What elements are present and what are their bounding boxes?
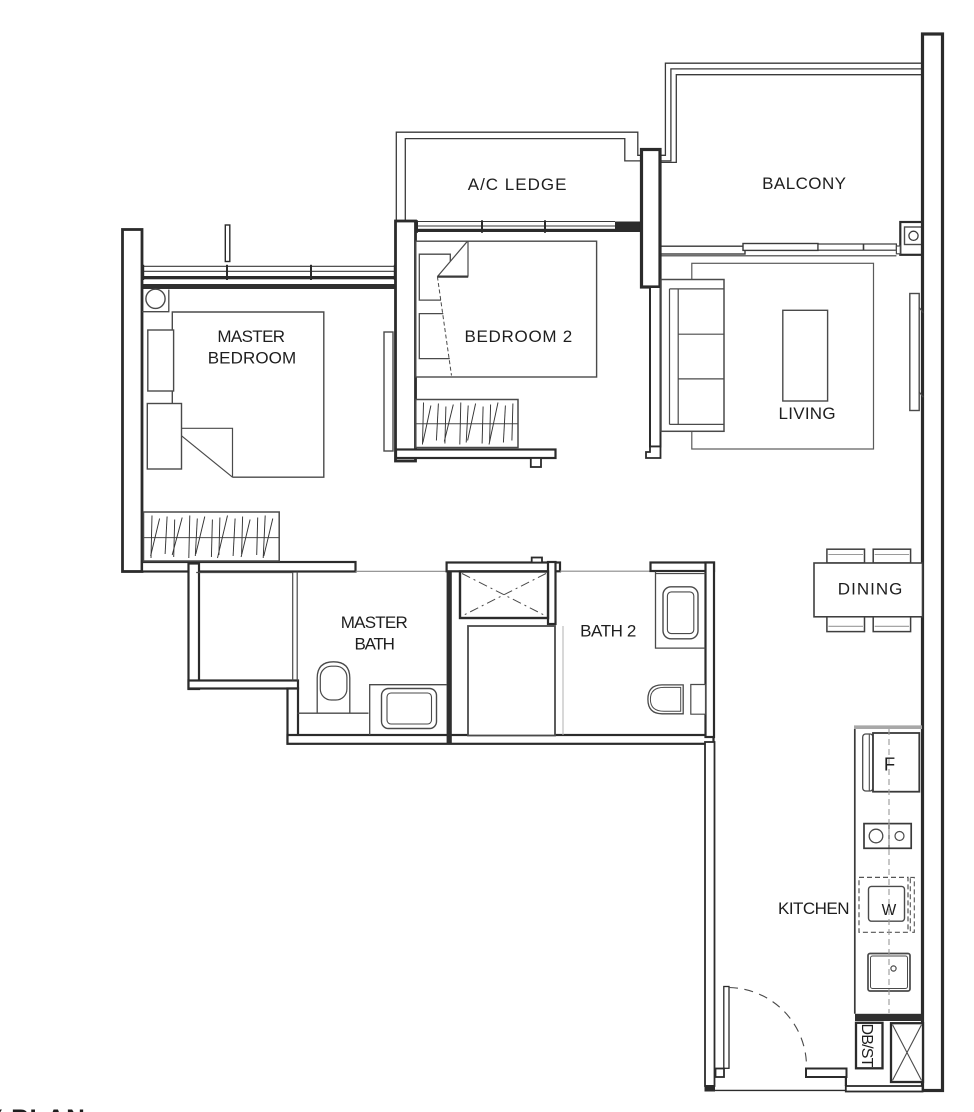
svg-text:BEDROOM: BEDROOM [208, 349, 297, 368]
svg-text:BEDROOM 2: BEDROOM 2 [464, 327, 573, 346]
svg-text:F: F [884, 754, 895, 775]
svg-text:LIVING: LIVING [779, 404, 836, 423]
svg-text:BATH 2: BATH 2 [580, 621, 636, 640]
svg-text:A/C LEDGE: A/C LEDGE [468, 175, 568, 194]
svg-text:BATH: BATH [354, 634, 393, 653]
svg-text:KITCHEN: KITCHEN [778, 899, 849, 918]
svg-text:BALCONY: BALCONY [762, 174, 846, 193]
svg-text:MASTER: MASTER [341, 613, 408, 632]
svg-text:Y PLAN: Y PLAN [0, 1104, 86, 1112]
svg-text:DINING: DINING [838, 580, 904, 599]
svg-text:DB/ST: DB/ST [858, 1023, 875, 1067]
svg-text:W: W [882, 902, 897, 919]
svg-text:MASTER: MASTER [217, 327, 284, 346]
